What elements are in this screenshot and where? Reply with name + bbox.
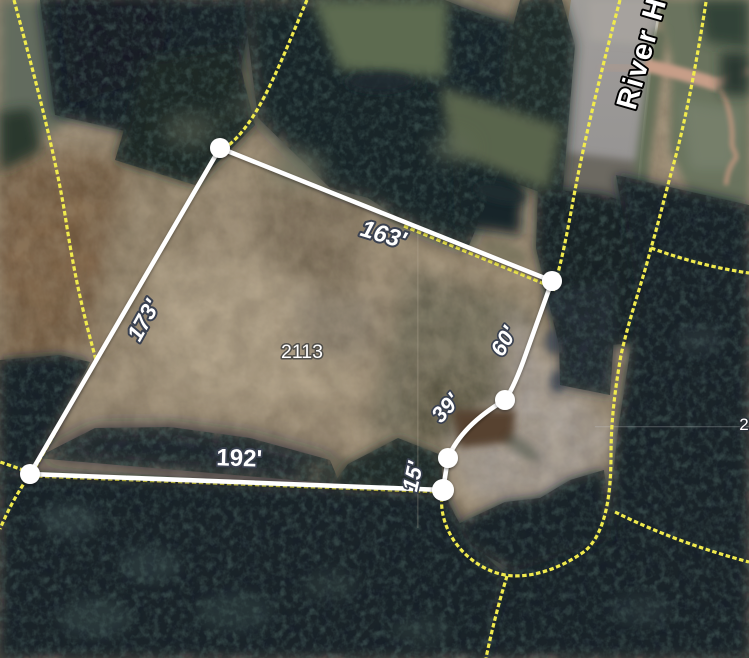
svg-text:2: 2: [739, 415, 748, 434]
svg-text:192': 192': [216, 444, 263, 473]
svg-text:2113: 2113: [281, 341, 323, 363]
